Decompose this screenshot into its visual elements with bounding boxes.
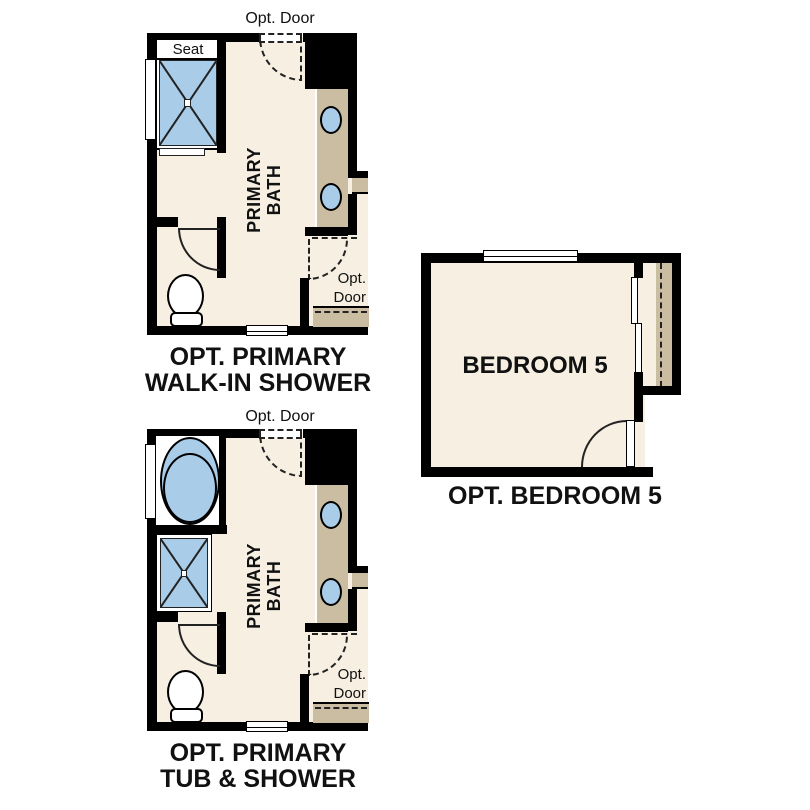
wall xyxy=(348,438,357,566)
floorplan-canvas: Opt. Door Seat Opt. Door xyxy=(0,0,810,810)
room-name-line: PRIMARY xyxy=(244,147,264,233)
closet-door-panel xyxy=(631,277,638,324)
bedroom5-room-name: BEDROOM 5 xyxy=(420,352,650,380)
wall xyxy=(348,42,357,171)
wall xyxy=(348,589,357,631)
plan-a-room-name: PRIMARY BATH xyxy=(234,120,294,260)
cabinet xyxy=(313,306,369,327)
wall xyxy=(421,467,653,477)
closet-shelf xyxy=(656,263,672,387)
window xyxy=(483,250,578,262)
shower-drain xyxy=(184,99,191,107)
wall xyxy=(147,612,178,622)
bedroom5-caption: OPT. BEDROOM 5 xyxy=(420,483,690,509)
plan-b-room-name: PRIMARY BATH xyxy=(234,516,294,656)
plan-b-opt-side-label-1: Opt. xyxy=(306,666,366,683)
closet-rod-dashed-line xyxy=(660,263,662,387)
window-mullion xyxy=(247,727,287,728)
wall-block xyxy=(305,33,353,89)
shower-drain xyxy=(181,570,187,577)
wall xyxy=(348,171,368,178)
window xyxy=(246,325,288,336)
wall xyxy=(147,140,157,335)
cabinet-dashed-line xyxy=(315,311,367,313)
cabinet-dashed-line xyxy=(315,707,367,709)
wall xyxy=(348,194,357,235)
wall xyxy=(147,217,178,227)
plan-b-opt-side-label-2: Door xyxy=(306,685,366,702)
cabinet xyxy=(313,702,369,723)
shower-seat-label: Seat xyxy=(157,40,219,60)
room-name-line: BATH xyxy=(264,543,284,629)
wall xyxy=(305,227,348,236)
sink-icon xyxy=(320,183,342,211)
counter-passthrough xyxy=(352,573,368,589)
sink-icon xyxy=(320,501,342,529)
room-name-line: BATH xyxy=(264,147,284,233)
plan-a-opt-door-top-label: Opt. Door xyxy=(230,10,330,28)
caption-line: TUB & SHOWER xyxy=(108,766,408,792)
toilet-tank-icon xyxy=(170,312,203,327)
plan-b-opt-door-top-label: Opt. Door xyxy=(230,408,330,426)
tub-inner-icon xyxy=(163,453,217,523)
counter-passthrough xyxy=(352,178,368,194)
door-leaf xyxy=(626,420,635,467)
plan-b-caption: OPT. PRIMARY TUB & SHOWER xyxy=(108,740,408,792)
wall xyxy=(219,429,226,533)
plan-a-caption: OPT. PRIMARY WALK-IN SHOWER xyxy=(108,344,408,396)
window-mullion xyxy=(484,256,577,257)
plan-a-opt-side-label-1: Opt. xyxy=(306,270,366,287)
caption-line: OPT. PRIMARY xyxy=(108,740,408,766)
wall xyxy=(147,525,227,534)
window xyxy=(246,721,288,732)
wall xyxy=(348,566,368,573)
sink-icon xyxy=(320,578,342,606)
caption-line: WALK-IN SHOWER xyxy=(108,370,408,396)
sink-icon xyxy=(320,106,342,134)
shower-curb xyxy=(159,148,205,156)
wall xyxy=(147,722,247,731)
toilet-tank-icon xyxy=(170,708,203,723)
wall xyxy=(147,326,247,335)
window-mullion xyxy=(247,331,287,332)
wall xyxy=(634,263,643,278)
wall xyxy=(300,674,309,724)
wall xyxy=(672,253,681,395)
plan-a-opt-side-label-2: Door xyxy=(306,289,366,306)
caption-line: OPT. PRIMARY xyxy=(108,344,408,370)
room-name-line: PRIMARY xyxy=(244,543,264,629)
wall xyxy=(300,278,309,328)
wall xyxy=(305,623,348,632)
wall xyxy=(217,33,226,153)
wall-block xyxy=(305,429,353,485)
